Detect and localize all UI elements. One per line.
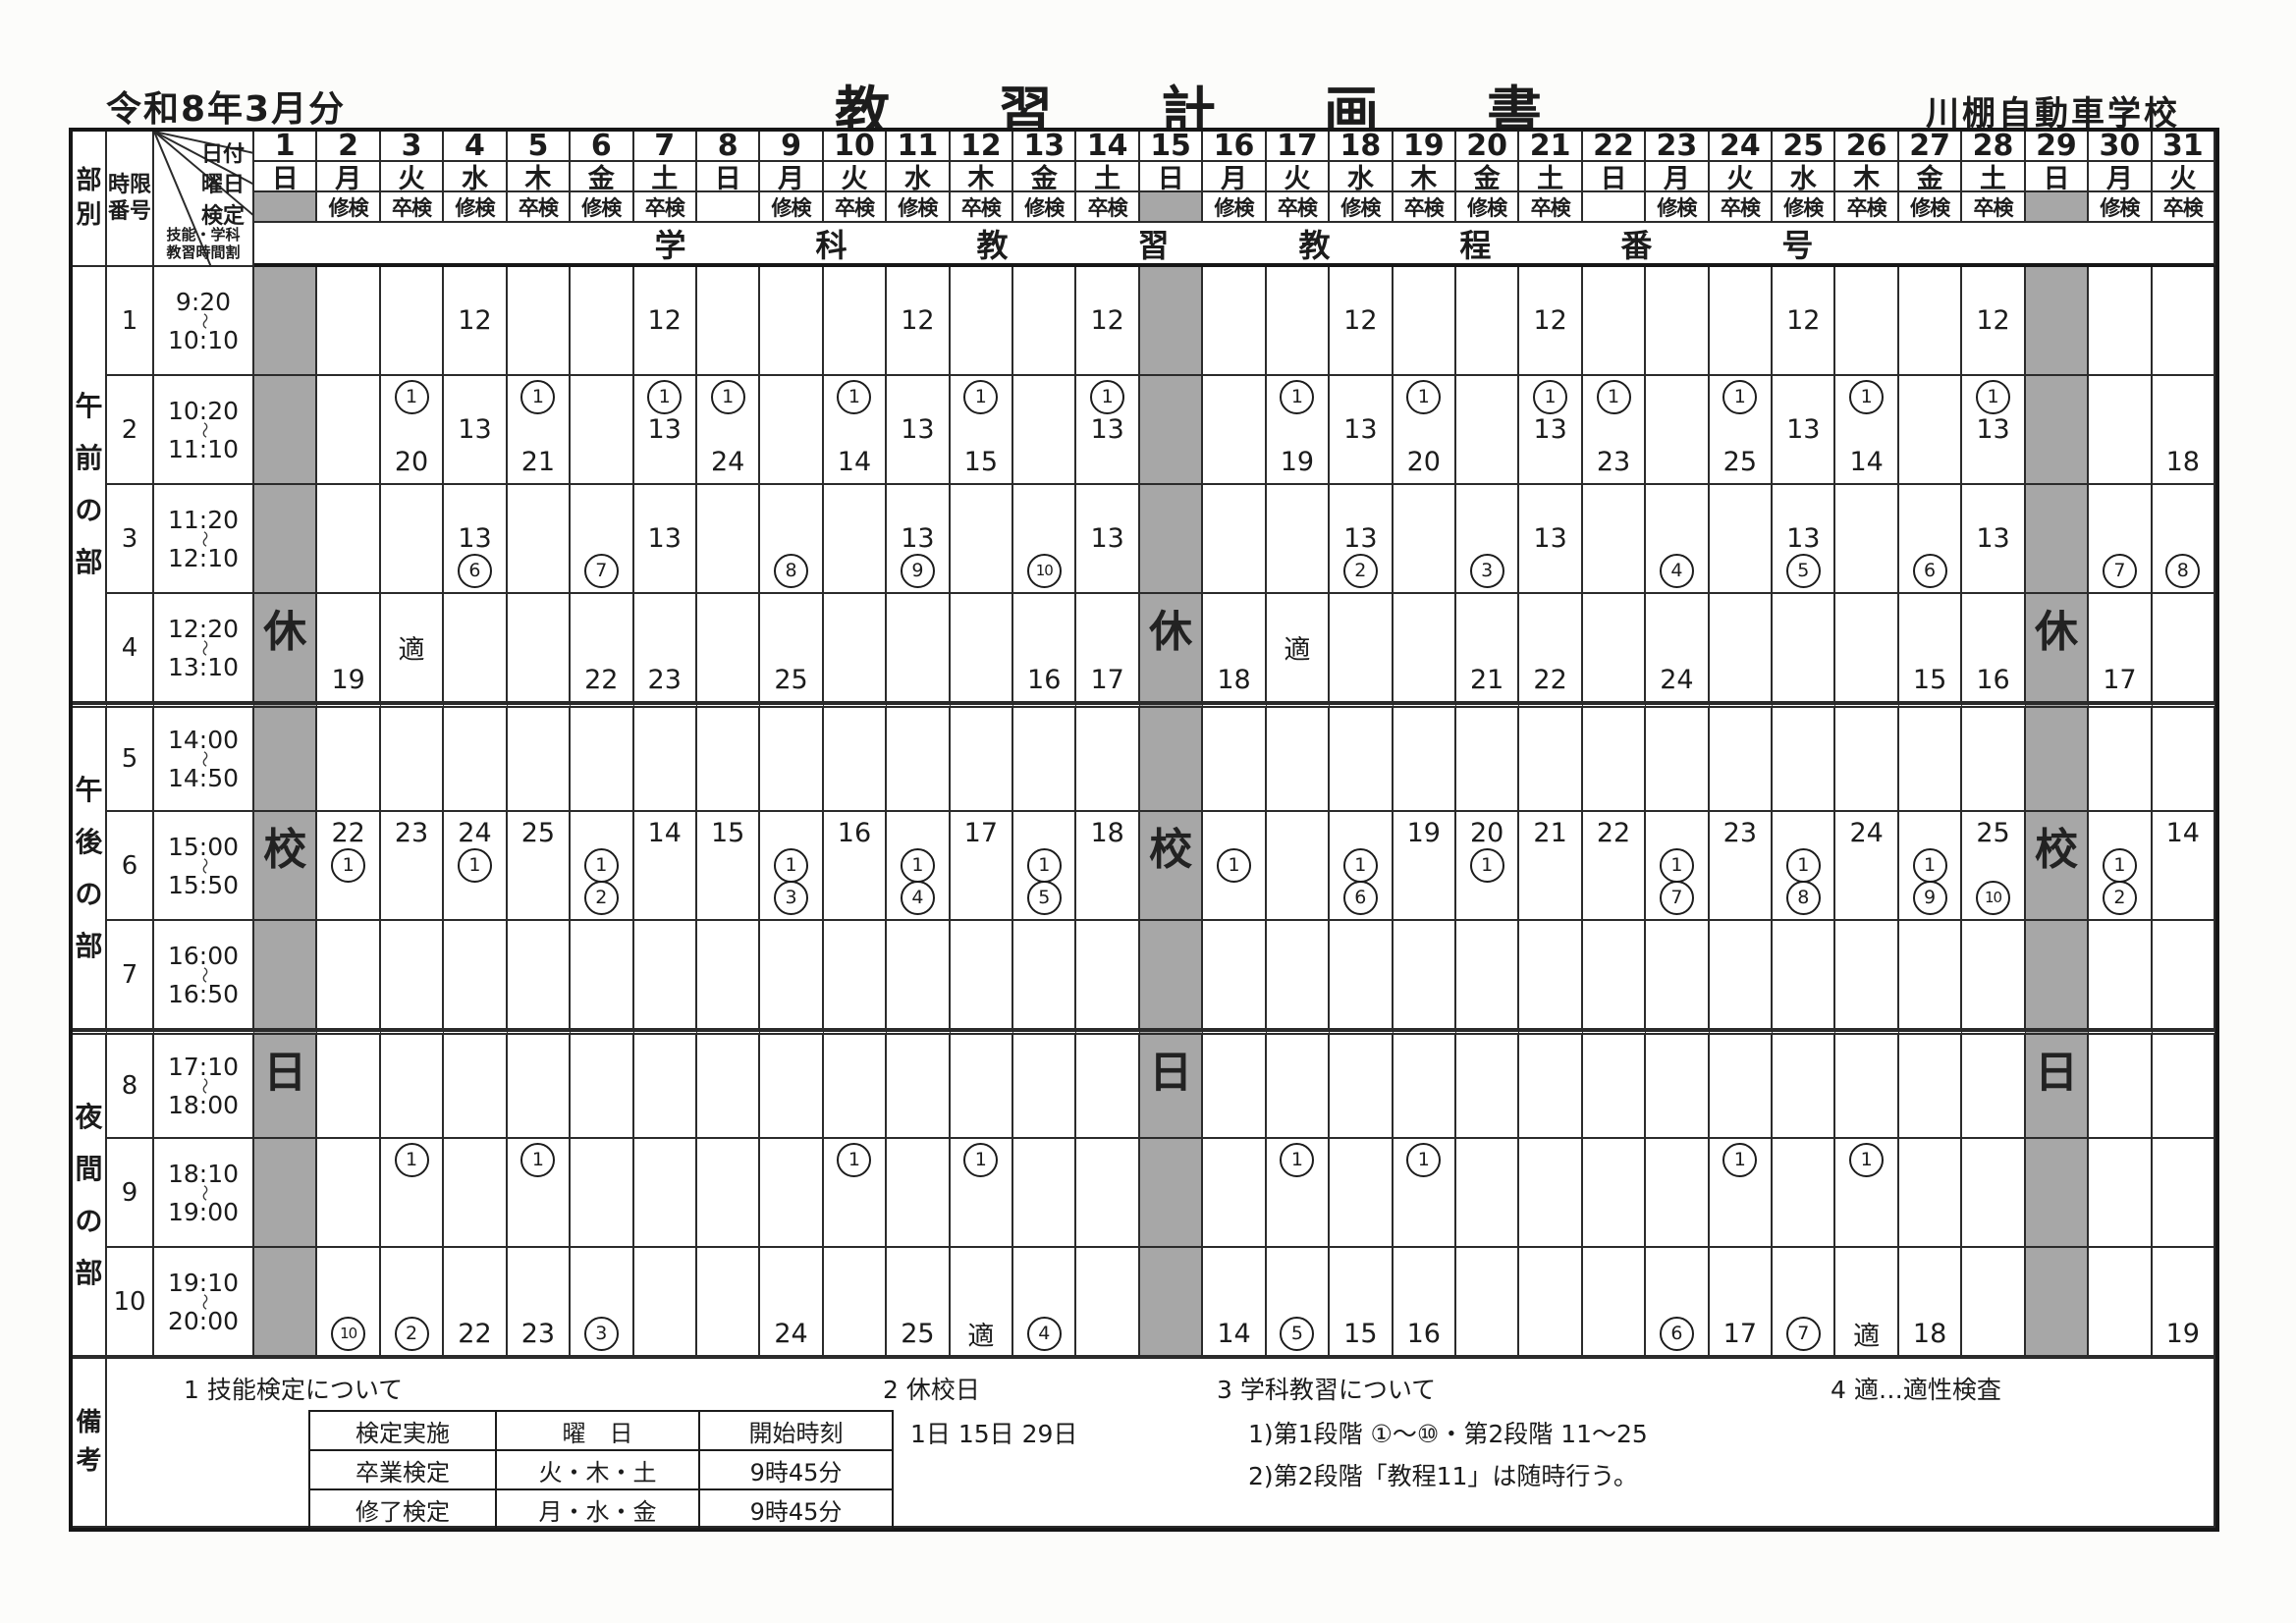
circled-lecture-number: 3 xyxy=(1470,554,1504,588)
circled-lecture-number: 1 xyxy=(331,848,365,883)
circled-lecture-number: 1 xyxy=(2103,848,2137,883)
cell-slot: 25 xyxy=(901,1318,934,1350)
circled-lecture-number: 7 xyxy=(1660,881,1694,915)
exam-header-26: 卒検 xyxy=(1835,192,1898,223)
cell-slot: 13 xyxy=(1533,522,1566,555)
schedule-cell-d19-p6: 19 xyxy=(1394,812,1456,921)
period-number-2: 2 xyxy=(107,376,154,485)
schedule-cell-d2-p8 xyxy=(317,1030,380,1139)
circled-lecture-number: 1 xyxy=(711,380,745,414)
schedule-cell-d9-p5 xyxy=(760,703,823,812)
circled-lecture-number: 1 xyxy=(774,848,808,883)
circled-lecture-number: 8 xyxy=(1786,881,1821,915)
schedule-cell-d28-p6: 2510 xyxy=(1962,812,2025,921)
schedule-cell-d26-p4 xyxy=(1835,594,1898,703)
cell-slot: 10 xyxy=(1976,882,2010,914)
corner-diagonal-cell: 日付 曜日 検定 技能・学科 教習時間割 xyxy=(154,132,254,267)
cell-slot: 16 xyxy=(1407,1318,1441,1350)
schedule-cell-d8-p9 xyxy=(697,1139,760,1248)
schedule-cell-d31-p5 xyxy=(2153,703,2215,812)
cell-slot: 7 xyxy=(1786,1318,1821,1350)
schedule-cell-d8-p10 xyxy=(697,1248,760,1357)
circled-lecture-number: 5 xyxy=(1786,554,1821,588)
exam-header-29 xyxy=(2026,192,2089,223)
cell-slot: 22 xyxy=(331,817,364,849)
period-label-line1: 時限 xyxy=(108,172,151,199)
cell-slot: 18 xyxy=(2166,446,2200,478)
time-text: 10:20 xyxy=(168,397,239,425)
schedule-cell-d10-p7 xyxy=(824,921,887,1030)
schedule-cell-d12-p6: 17 xyxy=(951,812,1013,921)
cell-slot: 2 xyxy=(1343,555,1378,587)
cell-slot: 1 xyxy=(1913,849,1947,882)
circled-lecture-number: 1 xyxy=(1280,1143,1314,1177)
dow-row-label: 曜日 xyxy=(198,167,247,198)
cell-slot: 1 xyxy=(647,381,682,413)
schedule-cell-d16-p6: 1 xyxy=(1203,812,1266,921)
schedule-cell-d18-p10: 15 xyxy=(1330,1248,1393,1357)
schedule-cell-d31-p3: 8 xyxy=(2153,485,2215,594)
period-number-4: 4 xyxy=(107,594,154,703)
dow-header-26: 木 xyxy=(1835,162,1898,192)
schedule-cell-d3-p10: 2 xyxy=(381,1248,444,1357)
schedule-cell-d28-p1: 12 xyxy=(1962,267,2025,376)
period-time-10: 19:10〜20:00 xyxy=(154,1248,254,1357)
exam-header-15 xyxy=(1140,192,1203,223)
schedule-cell-d23-p9 xyxy=(1646,1139,1709,1248)
schedule-cell-d8-p7 xyxy=(697,921,760,1030)
period-time-7: 16:00〜16:50 xyxy=(154,921,254,1030)
dow-header-2: 月 xyxy=(317,162,380,192)
exam-header-23: 修検 xyxy=(1646,192,1709,223)
schedule-cell-d22-p8 xyxy=(1583,1030,1646,1139)
cell-slot: 24 xyxy=(1850,817,1884,849)
circled-lecture-number: 10 xyxy=(1027,554,1062,588)
remarks-header: 備考 xyxy=(73,1357,107,1528)
graduation-exam-label: 卒業検定 xyxy=(309,1450,496,1489)
cell-slot: 16 xyxy=(838,817,871,849)
period-number-column-header: 時限 番号 xyxy=(107,132,154,267)
schedule-cell-d24-p7 xyxy=(1710,921,1773,1030)
schedule-cell-d27-p8 xyxy=(1899,1030,1962,1139)
schedule-cell-d29-p2 xyxy=(2026,376,2089,485)
schedule-cell-d24-p2: 125 xyxy=(1710,376,1773,485)
schedule-cell-d15-p8: 日 xyxy=(1140,1030,1203,1139)
schedule-cell-d10-p3 xyxy=(824,485,887,594)
remark-2-title: 2 休校日 xyxy=(883,1371,980,1406)
schedule-cell-d16-p4: 18 xyxy=(1203,594,1266,703)
schedule-cell-d7-p4: 23 xyxy=(634,594,697,703)
cell-slot: 1 xyxy=(1090,381,1124,413)
dow-header-4: 水 xyxy=(444,162,507,192)
vertical-char: 部 xyxy=(75,1247,102,1299)
cell-slot: 1 xyxy=(1976,381,2010,413)
schedule-cell-d26-p3 xyxy=(1835,485,1898,594)
dow-header-9: 月 xyxy=(760,162,823,192)
schedule-cell-d31-p8 xyxy=(2153,1030,2215,1139)
schedule-cell-d28-p2: 113 xyxy=(1962,376,2025,485)
schedule-cell-d26-p1 xyxy=(1835,267,1898,376)
cell-slot: 2 xyxy=(2103,882,2137,914)
schedule-cell-d11-p2: 13 xyxy=(887,376,950,485)
exam-header-16: 修検 xyxy=(1203,192,1266,223)
cell-slot: 16 xyxy=(1976,664,2009,696)
schedule-cell-d12-p5 xyxy=(951,703,1013,812)
schedule-cell-d15-p5 xyxy=(1140,703,1203,812)
schedule-cell-d1-p7 xyxy=(254,921,317,1030)
cell-slot: 15 xyxy=(1343,1318,1377,1350)
remark-4-title: 4 適…適性検査 xyxy=(1831,1371,2001,1406)
exam-table-header-time: 開始時刻 xyxy=(699,1411,893,1450)
schedule-cell-d21-p3: 13 xyxy=(1519,485,1582,594)
time-text: 19:10 xyxy=(168,1269,239,1297)
schedule-cell-d2-p2 xyxy=(317,376,380,485)
schedule-cell-d15-p2 xyxy=(1140,376,1203,485)
cell-slot: 12 xyxy=(901,304,934,337)
schedule-cell-d24-p6: 23 xyxy=(1710,812,1773,921)
schedule-cell-d26-p2: 114 xyxy=(1835,376,1898,485)
period-time-1: 9:20〜10:10 xyxy=(154,267,254,376)
cell-slot: 13 xyxy=(901,413,934,446)
schedule-cell-d1-p3 xyxy=(254,485,317,594)
schedule-cell-d24-p1 xyxy=(1710,267,1773,376)
schedule-cell-d2-p9 xyxy=(317,1139,380,1248)
exam-header-3: 卒検 xyxy=(381,192,444,223)
schedule-cell-d16-p3 xyxy=(1203,485,1266,594)
closed-day-vertical-char: 校 xyxy=(2026,814,2087,877)
schedule-cell-d17-p10: 5 xyxy=(1267,1248,1330,1357)
time-text: 〜 xyxy=(198,857,208,874)
dow-header-10: 火 xyxy=(824,162,887,192)
cell-slot: 12 xyxy=(1533,304,1566,337)
schedule-cell-d6-p6: 12 xyxy=(571,812,633,921)
circled-lecture-number: 2 xyxy=(584,881,619,915)
circled-lecture-number: 1 xyxy=(1343,848,1378,883)
schedule-cell-d24-p5 xyxy=(1710,703,1773,812)
closed-day-vertical-char: 休 xyxy=(2026,596,2087,659)
remark-3-title: 3 学科教習について xyxy=(1217,1371,1436,1406)
schedule-cell-d29-p8: 日 xyxy=(2026,1030,2089,1139)
vertical-char: 考 xyxy=(76,1442,101,1481)
schedule-cell-d23-p7 xyxy=(1646,921,1709,1030)
schedule-cell-d25-p8 xyxy=(1773,1030,1835,1139)
cell-slot: 1 xyxy=(458,849,492,882)
cell-slot: 23 xyxy=(648,664,682,696)
schedule-cell-d25-p2: 13 xyxy=(1773,376,1835,485)
schedule-cell-d31-p1 xyxy=(2153,267,2215,376)
time-text: 9:20 xyxy=(176,288,231,316)
completion-exam-label: 修了検定 xyxy=(309,1489,496,1529)
dow-header-23: 月 xyxy=(1646,162,1709,192)
dow-header-18: 水 xyxy=(1330,162,1393,192)
exam-header-24: 卒検 xyxy=(1710,192,1773,223)
schedule-cell-d30-p8 xyxy=(2089,1030,2152,1139)
schedule-cell-d20-p1 xyxy=(1456,267,1519,376)
skill-label-line2: 教習時間割 xyxy=(166,243,240,261)
cell-slot: 24 xyxy=(458,817,491,849)
cell-slot: 24 xyxy=(774,1318,807,1350)
cell-slot: 1 xyxy=(1280,381,1314,413)
circled-lecture-number: 6 xyxy=(1343,881,1378,915)
schedule-cell-d19-p2: 120 xyxy=(1394,376,1456,485)
schedule-cell-d23-p8 xyxy=(1646,1030,1709,1139)
schedule-cell-d24-p8 xyxy=(1710,1030,1773,1139)
schedule-cell-d25-p5 xyxy=(1773,703,1835,812)
schedule-cell-d5-p10: 23 xyxy=(508,1248,571,1357)
schedule-cell-d2-p7 xyxy=(317,921,380,1030)
schedule-cell-d29-p3 xyxy=(2026,485,2089,594)
schedule-cell-d3-p6: 23 xyxy=(381,812,444,921)
time-text: 12:10 xyxy=(168,544,239,572)
schedule-cell-d9-p4: 25 xyxy=(760,594,823,703)
schedule-cell-d17-p5 xyxy=(1267,703,1330,812)
exam-header-20: 修検 xyxy=(1456,192,1519,223)
cell-slot: 17 xyxy=(2103,664,2136,696)
cell-slot: 21 xyxy=(1533,817,1566,849)
schedule-cell-d20-p10 xyxy=(1456,1248,1519,1357)
circled-lecture-number: 4 xyxy=(1660,554,1694,588)
dow-header-27: 金 xyxy=(1899,162,1962,192)
schedule-cell-d14-p7 xyxy=(1076,921,1139,1030)
lecture-number-band: 学科教習教程番号 xyxy=(254,223,2215,267)
cell-slot: 17 xyxy=(1723,1318,1757,1350)
period-time-2: 10:20〜11:10 xyxy=(154,376,254,485)
exam-header-19: 卒検 xyxy=(1394,192,1456,223)
completion-exam-time: 9時45分 xyxy=(699,1489,893,1529)
schedule-cell-d17-p7 xyxy=(1267,921,1330,1030)
time-text: 11:10 xyxy=(168,435,239,463)
schedule-cell-d30-p6: 12 xyxy=(2089,812,2152,921)
cell-slot: 14 xyxy=(838,446,871,478)
cell-slot: 13 xyxy=(648,413,682,446)
schedule-cell-d7-p6: 14 xyxy=(634,812,697,921)
exam-header-25: 修検 xyxy=(1773,192,1835,223)
schedule-cell-d31-p9 xyxy=(2153,1139,2215,1248)
circled-lecture-number: 1 xyxy=(1660,848,1694,883)
time-text: 〜 xyxy=(198,530,208,547)
schedule-cell-d19-p9: 1 xyxy=(1394,1139,1456,1248)
schedule-cell-d5-p4 xyxy=(508,594,571,703)
cell-slot: 1 xyxy=(963,1144,998,1176)
schedule-cell-d12-p8 xyxy=(951,1030,1013,1139)
exam-table-header-row: 検定実施 曜 日 開始時刻 xyxy=(309,1411,893,1450)
schedule-cell-d20-p3: 3 xyxy=(1456,485,1519,594)
schedule-cell-d12-p10: 適 xyxy=(951,1248,1013,1357)
date-row-label: 日付 xyxy=(198,136,247,168)
schedule-cell-d16-p10: 14 xyxy=(1203,1248,1266,1357)
schedule-cell-d15-p1 xyxy=(1140,267,1203,376)
vertical-char: 科 xyxy=(815,221,847,266)
schedule-cell-d24-p4 xyxy=(1710,594,1773,703)
circled-lecture-number: 2 xyxy=(395,1317,429,1351)
skill-label-line1: 技能・学科 xyxy=(166,226,240,243)
exam-header-5: 卒検 xyxy=(508,192,571,223)
schedule-cell-d11-p9 xyxy=(887,1139,950,1248)
schedule-cell-d26-p10: 適 xyxy=(1835,1248,1898,1357)
cell-slot: 19 xyxy=(331,664,364,696)
dow-header-6: 金 xyxy=(571,162,633,192)
title-bar: 令和8年3月分 教習計画書 川棚自動車学校 xyxy=(0,0,2296,128)
schedule-cell-d29-p9 xyxy=(2026,1139,2089,1248)
dow-header-25: 水 xyxy=(1773,162,1835,192)
circled-lecture-number: 2 xyxy=(1343,554,1378,588)
schedule-cell-d7-p9 xyxy=(634,1139,697,1248)
schedule-cell-d23-p6: 17 xyxy=(1646,812,1709,921)
cell-slot: 9 xyxy=(901,555,935,587)
schedule-cell-d9-p3: 8 xyxy=(760,485,823,594)
circled-lecture-number: 1 xyxy=(1849,380,1884,414)
cell-slot: 24 xyxy=(1660,664,1693,696)
schedule-cell-d26-p7 xyxy=(1835,921,1898,1030)
schedule-cell-d30-p3: 7 xyxy=(2089,485,2152,594)
cell-slot: 23 xyxy=(521,1318,555,1350)
schedule-cell-d21-p9 xyxy=(1519,1139,1582,1248)
circled-lecture-number: 9 xyxy=(901,554,935,588)
schedule-cell-d24-p3 xyxy=(1710,485,1773,594)
schedule-cell-d23-p10: 6 xyxy=(1646,1248,1709,1357)
schedule-cell-d2-p4: 19 xyxy=(317,594,380,703)
circled-lecture-number: 1 xyxy=(901,848,935,883)
cell-slot: 1 xyxy=(2103,849,2137,882)
schedule-cell-d19-p5 xyxy=(1394,703,1456,812)
cell-slot: 17 xyxy=(964,817,998,849)
cell-slot: 1 xyxy=(1849,381,1884,413)
schedule-cell-d14-p8 xyxy=(1076,1030,1139,1139)
circled-lecture-number: 3 xyxy=(774,881,808,915)
schedule-cell-d17-p2: 119 xyxy=(1267,376,1330,485)
vertical-char: 習 xyxy=(1137,221,1169,266)
period-number-8: 8 xyxy=(107,1030,154,1139)
schedule-cell-d3-p3 xyxy=(381,485,444,594)
schedule-cell-d20-p6: 201 xyxy=(1456,812,1519,921)
cell-slot: 25 xyxy=(1723,446,1757,478)
schedule-cell-d23-p4: 24 xyxy=(1646,594,1709,703)
schedule-cell-d30-p9 xyxy=(2089,1139,2152,1248)
schedule-cell-d27-p9 xyxy=(1899,1139,1962,1248)
circled-lecture-number: 1 xyxy=(1976,380,2010,414)
cell-slot: 1 xyxy=(1849,1144,1884,1176)
schedule-cell-d5-p5 xyxy=(508,703,571,812)
schedule-cell-d16-p5 xyxy=(1203,703,1266,812)
cell-slot: 23 xyxy=(1723,817,1757,849)
circled-lecture-number: 10 xyxy=(331,1317,365,1351)
schedule-cell-d10-p8 xyxy=(824,1030,887,1139)
cell-slot: 12 xyxy=(1090,304,1123,337)
cell-slot: 6 xyxy=(1343,882,1378,914)
vertical-char: 教 xyxy=(976,221,1008,266)
circled-lecture-number: 6 xyxy=(458,554,492,588)
schedule-cell-d12-p1 xyxy=(951,267,1013,376)
vertical-char: 号 xyxy=(1781,221,1813,266)
schedule-cell-d18-p8 xyxy=(1330,1030,1393,1139)
schedule-cell-d30-p5 xyxy=(2089,703,2152,812)
circled-lecture-number: 1 xyxy=(1280,380,1314,414)
schedule-cell-d16-p8 xyxy=(1203,1030,1266,1139)
schedule-cell-d5-p7 xyxy=(508,921,571,1030)
schedule-cell-d5-p2: 121 xyxy=(508,376,571,485)
closed-day-vertical-char: 校 xyxy=(1140,814,1201,877)
circled-lecture-number: 7 xyxy=(2103,554,2137,588)
schedule-cell-d17-p1 xyxy=(1267,267,1330,376)
remark-1-title: 1 技能検定について xyxy=(184,1371,403,1406)
cell-slot: 16 xyxy=(1027,664,1061,696)
schedule-cell-d8-p8 xyxy=(697,1030,760,1139)
cell-slot: 25 xyxy=(774,664,807,696)
schedule-cell-d11-p1: 12 xyxy=(887,267,950,376)
time-text: 〜 xyxy=(198,639,208,656)
schedule-cell-d25-p9 xyxy=(1773,1139,1835,1248)
cell-slot: 21 xyxy=(1470,664,1503,696)
schedule-cell-d13-p4: 16 xyxy=(1013,594,1076,703)
schedule-cell-d5-p3 xyxy=(508,485,571,594)
remark-3-line2: 2)第2段階「教程11」は随時行う。 xyxy=(1248,1457,1638,1492)
schedule-cell-d14-p3: 13 xyxy=(1076,485,1139,594)
schedule-cell-d10-p6: 16 xyxy=(824,812,887,921)
circled-lecture-number: 5 xyxy=(1027,881,1062,915)
circled-lecture-number: 1 xyxy=(1217,848,1251,883)
schedule-cell-d6-p7 xyxy=(571,921,633,1030)
schedule-cell-d4-p6: 241 xyxy=(444,812,507,921)
cell-slot: 1 xyxy=(837,1144,871,1176)
circled-lecture-number: 1 xyxy=(395,1143,429,1177)
schedule-cell-d4-p4 xyxy=(444,594,507,703)
exam-header-28: 卒検 xyxy=(1962,192,2025,223)
schedule-cell-d5-p1 xyxy=(508,267,571,376)
dow-header-19: 木 xyxy=(1394,162,1456,192)
schedule-cell-d6-p2 xyxy=(571,376,633,485)
time-text: 15:00 xyxy=(168,833,239,861)
vertical-char: 教 xyxy=(1298,221,1330,266)
cell-slot: 13 xyxy=(648,522,682,555)
schedule-cell-d22-p5 xyxy=(1583,703,1646,812)
circled-lecture-number: 4 xyxy=(901,881,935,915)
schedule-cell-d14-p5 xyxy=(1076,703,1139,812)
dow-header-3: 火 xyxy=(381,162,444,192)
schedule-cell-d3-p4: 適 xyxy=(381,594,444,703)
schedule-cell-d7-p2: 113 xyxy=(634,376,697,485)
exam-header-14: 卒検 xyxy=(1076,192,1139,223)
cell-slot: 19 xyxy=(1407,817,1441,849)
schedule-cell-d11-p5 xyxy=(887,703,950,812)
skill-timetable-label: 技能・学科 教習時間割 xyxy=(154,226,252,263)
schedule-cell-d14-p6: 18 xyxy=(1076,812,1139,921)
cell-slot: 1 xyxy=(1722,381,1757,413)
schedule-cell-d11-p4 xyxy=(887,594,950,703)
exam-header-11: 修検 xyxy=(887,192,950,223)
cell-slot: 1 xyxy=(1660,849,1694,882)
cell-slot: 22 xyxy=(458,1318,491,1350)
schedule-cell-d21-p1: 12 xyxy=(1519,267,1582,376)
time-text: 16:50 xyxy=(168,980,239,1008)
dow-header-24: 火 xyxy=(1710,162,1773,192)
schedule-cell-d26-p8 xyxy=(1835,1030,1898,1139)
schedule-cell-d28-p8 xyxy=(1962,1030,2025,1139)
schedule-cell-d2-p1 xyxy=(317,267,380,376)
cell-slot: 13 xyxy=(1976,522,2009,555)
dow-header-29: 日 xyxy=(2026,162,2089,192)
cell-slot: 12 xyxy=(1786,304,1820,337)
closed-day-vertical-char: 休 xyxy=(254,596,315,659)
circled-lecture-number: 1 xyxy=(458,848,492,883)
schedule-cell-d1-p2 xyxy=(254,376,317,485)
training-plan-sheet: 令和8年3月分 教習計画書 川棚自動車学校 部別 時限 番号 日付 曜日 検定 … xyxy=(0,0,2296,1623)
time-text: 14:50 xyxy=(168,764,239,792)
circled-lecture-number: 6 xyxy=(1660,1317,1694,1351)
cell-slot: 13 xyxy=(1090,522,1123,555)
schedule-cell-d13-p7 xyxy=(1013,921,1076,1030)
time-text: 〜 xyxy=(198,421,208,438)
cell-slot: 13 xyxy=(1786,413,1820,446)
